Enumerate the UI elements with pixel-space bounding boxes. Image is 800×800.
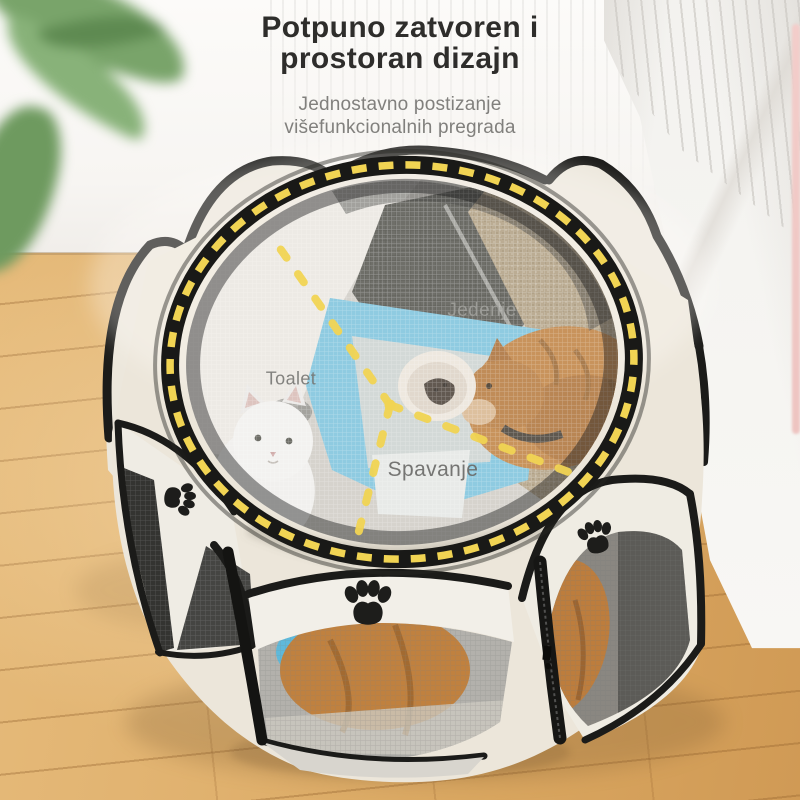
product-title: Potpuno zatvoren i prostoran dizajn — [0, 12, 800, 74]
product-showcase: Potpuno zatvoren i prostoran dizajn Jedn… — [0, 0, 800, 800]
title-line-2: prostoran dizajn — [0, 43, 800, 74]
zone-label-eating: Jedenje — [447, 300, 516, 322]
product-subtitle: Jednostavno postizanje višefunkcionalnih… — [0, 93, 800, 139]
subtitle-line-2: višefunkcionalnih pregrada — [0, 116, 800, 139]
subtitle-line-1: Jednostavno postizanje — [0, 93, 800, 116]
title-line-1: Potpuno zatvoren i — [0, 12, 800, 43]
zone-label-sleeping: Spavanje — [388, 458, 479, 482]
zone-divider-junction — [385, 400, 396, 411]
zone-label-toilet: Toalet — [266, 369, 316, 390]
